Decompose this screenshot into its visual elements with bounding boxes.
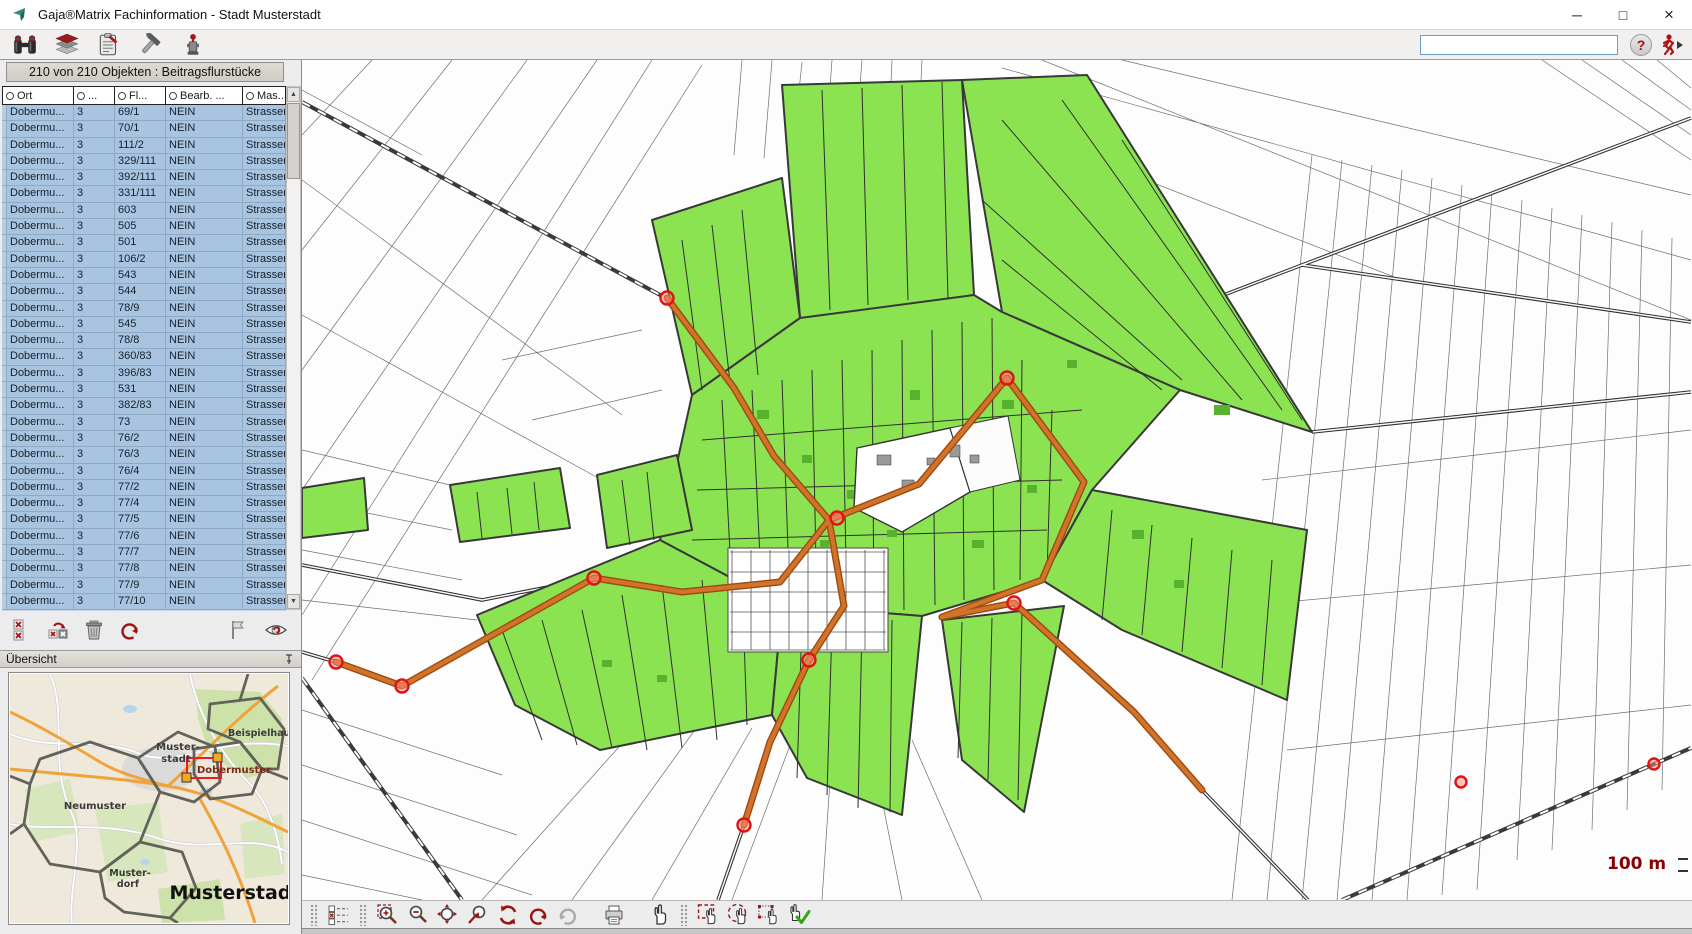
table-row[interactable]: Dobermu...3382/83NEINStrassen... [2, 398, 286, 414]
zoom-extent-icon[interactable] [436, 903, 460, 927]
cell-mas[interactable]: Strassen... [243, 431, 286, 447]
results-table-body[interactable]: Dobermu...369/1NEINStrassen...Dobermu...… [2, 105, 286, 611]
cell-ort[interactable]: Dobermu... [7, 349, 74, 365]
table-scrollbar[interactable]: ▲ ▼ [286, 86, 301, 610]
overview-map-canvas[interactable]: Beispielhausen Muster- stadt Dobermuster… [10, 674, 288, 923]
cell-fl[interactable]: 77/4 [115, 496, 166, 512]
cell-fl[interactable]: 77/5 [115, 512, 166, 528]
cell-nr[interactable]: 3 [74, 317, 115, 333]
refresh-icon[interactable] [496, 903, 520, 927]
label-musterdorf-1: Muster- [109, 868, 151, 879]
cell-mas[interactable]: Strassen... [243, 284, 286, 300]
cell-ort[interactable]: Dobermu... [7, 578, 74, 594]
cell-ort[interactable]: Dobermu... [7, 317, 74, 333]
radio-icon[interactable] [6, 92, 14, 100]
cell-bearb[interactable]: NEIN [166, 382, 243, 398]
cell-fl[interactable]: 603 [115, 203, 166, 219]
cell-bearb[interactable]: NEIN [166, 333, 243, 349]
cell-fl[interactable]: 392/111 [115, 170, 166, 186]
cell-fl[interactable]: 76/3 [115, 447, 166, 463]
table-row[interactable]: Dobermu...3501NEINStrassen... [2, 235, 286, 251]
cell-ort[interactable]: Dobermu... [7, 398, 74, 414]
cell-nr[interactable]: 3 [74, 431, 115, 447]
pin-icon[interactable] [283, 653, 295, 665]
table-row[interactable]: Dobermu...3331/111NEINStrassen... [2, 186, 286, 202]
zoom-previous-icon[interactable] [466, 903, 490, 927]
layers-icon[interactable] [54, 32, 80, 58]
table-row[interactable]: Dobermu...3396/83NEINStrassen... [2, 366, 286, 382]
table-header-row: Ort ... Fl... Bearb. ... Mas... [2, 86, 286, 105]
cell-mas[interactable]: Strassen... [243, 170, 286, 186]
cell-fl[interactable]: 77/2 [115, 480, 166, 496]
table-row[interactable]: Dobermu...377/8NEINStrassen... [2, 561, 286, 577]
cell-fl[interactable]: 396/83 [115, 366, 166, 382]
cell-nr[interactable]: 3 [74, 154, 115, 170]
cell-nr[interactable]: 3 [74, 121, 115, 137]
label-dobermuster: Dobermuster [197, 765, 271, 776]
table-row[interactable]: Dobermu...3603NEINStrassen... [2, 203, 286, 219]
column-header-massnahme[interactable]: Mas... [243, 86, 286, 105]
cell-nr[interactable]: 3 [74, 594, 115, 610]
toolbar-grip[interactable] [310, 904, 319, 926]
visibility-icon[interactable] [264, 618, 288, 642]
label-beispielhausen: Beispielhausen [228, 728, 288, 739]
cell-fl[interactable]: 111/2 [115, 138, 166, 154]
select-polygon-icon[interactable] [757, 903, 781, 927]
cell-mas[interactable]: Strassen... [243, 268, 286, 284]
cell-fl[interactable]: 77/10 [115, 594, 166, 610]
cell-mas[interactable]: Strassen... [243, 235, 286, 251]
cell-nr[interactable]: 3 [74, 138, 115, 154]
scale-label: 100 m [1607, 854, 1666, 874]
scroll-up-button[interactable]: ▲ [287, 87, 300, 102]
main-toolbar: ? [0, 30, 1692, 60]
cell-nr[interactable]: 3 [74, 545, 115, 561]
cell-bearb[interactable]: NEIN [166, 447, 243, 463]
cell-nr[interactable]: 3 [74, 398, 115, 414]
cell-bearb[interactable]: NEIN [166, 398, 243, 414]
cell-bearb[interactable]: NEIN [166, 366, 243, 382]
cell-ort[interactable]: Dobermu... [7, 301, 74, 317]
cell-bearb[interactable]: NEIN [166, 480, 243, 496]
overview-panel-header[interactable]: Übersicht [0, 650, 301, 668]
cell-ort[interactable]: Dobermu... [7, 594, 74, 610]
cell-bearb[interactable]: NEIN [166, 268, 243, 284]
table-row[interactable]: Dobermu...3106/2NEINStrassen... [2, 252, 286, 268]
cell-mas[interactable]: Strassen... [243, 252, 286, 268]
table-row[interactable]: Dobermu...370/1NEINStrassen... [2, 121, 286, 137]
label-musterstadt-1: Muster- [156, 742, 200, 753]
cell-nr[interactable]: 3 [74, 366, 115, 382]
cell-nr[interactable]: 3 [74, 268, 115, 284]
table-row[interactable]: Dobermu...3544NEINStrassen... [2, 284, 286, 300]
titlebar: Gaja®Matrix Fachinformation - Stadt Must… [0, 0, 1692, 30]
cell-fl[interactable]: 73 [115, 415, 166, 431]
cell-mas[interactable]: Strassen... [243, 366, 286, 382]
cell-fl[interactable]: 77/6 [115, 529, 166, 545]
select-circle-icon[interactable] [727, 903, 751, 927]
cell-ort[interactable]: Dobermu... [7, 284, 74, 300]
maximize-button[interactable]: □ [1600, 0, 1646, 30]
cell-bearb[interactable]: NEIN [166, 464, 243, 480]
cell-bearb[interactable]: NEIN [166, 317, 243, 333]
table-row[interactable]: Dobermu...3111/2NEINStrassen... [2, 138, 286, 154]
cell-ort[interactable]: Dobermu... [7, 480, 74, 496]
cell-ort[interactable]: Dobermu... [7, 186, 74, 202]
pan-icon[interactable] [648, 903, 672, 927]
table-row[interactable]: Dobermu...377/5NEINStrassen... [2, 512, 286, 528]
cell-mas[interactable]: Strassen... [243, 154, 286, 170]
table-row[interactable]: Dobermu...369/1NEINStrassen... [2, 105, 286, 121]
report-icon[interactable] [96, 32, 122, 58]
cell-mas[interactable]: Strassen... [243, 186, 286, 202]
cell-bearb[interactable]: NEIN [166, 512, 243, 528]
flag-icon[interactable] [226, 618, 250, 642]
cell-bearb[interactable]: NEIN [166, 219, 243, 235]
cell-bearb[interactable]: NEIN [166, 170, 243, 186]
cell-mas[interactable]: Strassen... [243, 203, 286, 219]
table-row[interactable]: Dobermu...373NEINStrassen... [2, 415, 286, 431]
cell-nr[interactable]: 3 [74, 480, 115, 496]
table-row[interactable]: Dobermu...377/2NEINStrassen... [2, 480, 286, 496]
table-row[interactable]: Dobermu...378/8NEINStrassen... [2, 333, 286, 349]
cell-nr[interactable]: 3 [74, 561, 115, 577]
cell-fl[interactable]: 543 [115, 268, 166, 284]
discard-selection-icon[interactable] [10, 618, 34, 642]
table-row[interactable]: Dobermu...376/2NEINStrassen... [2, 431, 286, 447]
cell-bearb[interactable]: NEIN [166, 594, 243, 610]
cell-mas[interactable]: Strassen... [243, 578, 286, 594]
cell-nr[interactable]: 3 [74, 170, 115, 186]
extent-handle-ne[interactable] [213, 753, 222, 762]
cell-ort[interactable]: Dobermu... [7, 105, 74, 121]
cell-nr[interactable]: 3 [74, 235, 115, 251]
cell-ort[interactable]: Dobermu... [7, 529, 74, 545]
cell-mas[interactable]: Strassen... [243, 398, 286, 414]
legend-icon[interactable] [327, 903, 351, 927]
reload-selection-icon[interactable] [46, 618, 70, 642]
development-grid [728, 548, 888, 652]
cell-bearb[interactable]: NEIN [166, 431, 243, 447]
cell-fl[interactable]: 501 [115, 235, 166, 251]
cell-bearb[interactable]: NEIN [166, 154, 243, 170]
table-row[interactable]: Dobermu...377/4NEINStrassen... [2, 496, 286, 512]
cell-ort[interactable]: Dobermu... [7, 268, 74, 284]
radio-icon[interactable] [77, 92, 85, 100]
delete-icon[interactable] [82, 618, 106, 642]
find-icon[interactable] [12, 32, 38, 58]
cell-fl[interactable]: 76/4 [115, 464, 166, 480]
cell-nr[interactable]: 3 [74, 512, 115, 528]
cell-nr[interactable]: 3 [74, 301, 115, 317]
cell-bearb[interactable]: NEIN [166, 186, 243, 202]
cell-nr[interactable]: 3 [74, 186, 115, 202]
results-panel: 210 von 210 Objekten : Beitragsflurstück… [0, 60, 302, 934]
cell-nr[interactable]: 3 [74, 496, 115, 512]
cell-mas[interactable]: Strassen... [243, 317, 286, 333]
undo-icon[interactable] [118, 618, 142, 642]
table-actions-bar [0, 612, 302, 648]
cell-ort[interactable]: Dobermu... [7, 235, 74, 251]
cell-bearb[interactable]: NEIN [166, 545, 243, 561]
cell-mas[interactable]: Strassen... [243, 382, 286, 398]
accept-selection-icon[interactable] [787, 903, 811, 927]
cell-mas[interactable]: Strassen... [243, 138, 286, 154]
cell-nr[interactable]: 3 [74, 415, 115, 431]
cell-nr[interactable]: 3 [74, 203, 115, 219]
table-row[interactable]: Dobermu...377/6NEINStrassen... [2, 529, 286, 545]
label-musterstadt-2: stadt [161, 754, 191, 765]
cell-ort[interactable]: Dobermu... [7, 464, 74, 480]
cell-bearb[interactable]: NEIN [166, 121, 243, 137]
cell-bearb[interactable]: NEIN [166, 105, 243, 121]
cell-ort[interactable]: Dobermu... [7, 431, 74, 447]
table-row[interactable]: Dobermu...3360/83NEINStrassen... [2, 349, 286, 365]
label-neumuster: Neumuster [64, 801, 126, 812]
cell-mas[interactable]: Strassen... [243, 333, 286, 349]
zoom-out-icon[interactable] [406, 903, 430, 927]
cell-bearb[interactable]: NEIN [166, 496, 243, 512]
cell-mas[interactable]: Strassen... [243, 415, 286, 431]
cell-fl[interactable]: 76/2 [115, 431, 166, 447]
cell-mas[interactable]: Strassen... [243, 594, 286, 610]
column-header-flurstueck[interactable]: Fl... [115, 86, 166, 105]
cell-bearb[interactable]: NEIN [166, 235, 243, 251]
cell-mas[interactable]: Strassen... [243, 121, 286, 137]
cell-ort[interactable]: Dobermu... [7, 203, 74, 219]
cell-mas[interactable]: Strassen... [243, 561, 286, 577]
cell-nr[interactable]: 3 [74, 447, 115, 463]
cell-fl[interactable]: 360/83 [115, 349, 166, 365]
cell-fl[interactable]: 544 [115, 284, 166, 300]
radio-icon[interactable] [118, 92, 126, 100]
scroll-thumb[interactable] [287, 103, 300, 179]
cell-ort[interactable]: Dobermu... [7, 154, 74, 170]
cell-ort[interactable]: Dobermu... [7, 333, 74, 349]
hydrant-icon[interactable] [180, 32, 206, 58]
radio-icon[interactable] [246, 92, 254, 100]
cell-mas[interactable]: Strassen... [243, 545, 286, 561]
cell-ort[interactable]: Dobermu... [7, 121, 74, 137]
cell-fl[interactable]: 77/8 [115, 561, 166, 577]
extent-handle-sw[interactable] [182, 773, 191, 782]
table-row[interactable]: Dobermu...3545NEINStrassen... [2, 317, 286, 333]
table-row[interactable]: Dobermu...376/3NEINStrassen... [2, 447, 286, 463]
cell-ort[interactable]: Dobermu... [7, 561, 74, 577]
map-toolbar [302, 900, 1692, 928]
cell-fl[interactable]: 77/7 [115, 545, 166, 561]
cell-ort[interactable]: Dobermu... [7, 415, 74, 431]
cell-bearb[interactable]: NEIN [166, 578, 243, 594]
toolbar-grip[interactable] [680, 904, 689, 926]
cell-mas[interactable]: Strassen... [243, 447, 286, 463]
cell-bearb[interactable]: NEIN [166, 138, 243, 154]
results-count-header: 210 von 210 Objekten : Beitragsflurstück… [6, 62, 284, 82]
cell-bearb[interactable]: NEIN [166, 203, 243, 219]
table-row[interactable]: Dobermu...3505NEINStrassen... [2, 219, 286, 235]
cell-fl[interactable]: 545 [115, 317, 166, 333]
cell-mas[interactable]: Strassen... [243, 496, 286, 512]
cell-bearb[interactable]: NEIN [166, 349, 243, 365]
cell-fl[interactable]: 78/9 [115, 301, 166, 317]
cell-fl[interactable]: 329/111 [115, 154, 166, 170]
app-window: { "window": { "title": "Gaja®Matrix Fach… [0, 0, 1692, 934]
cell-mas[interactable]: Strassen... [243, 480, 286, 496]
cell-mas[interactable]: Strassen... [243, 301, 286, 317]
cell-nr[interactable]: 3 [74, 529, 115, 545]
cell-fl[interactable]: 505 [115, 219, 166, 235]
cell-ort[interactable]: Dobermu... [7, 170, 74, 186]
cell-mas[interactable]: Strassen... [243, 512, 286, 528]
cell-mas[interactable]: Strassen... [243, 219, 286, 235]
scroll-down-button[interactable]: ▼ [287, 594, 300, 609]
cell-nr[interactable]: 3 [74, 105, 115, 121]
cell-fl[interactable]: 531 [115, 382, 166, 398]
cell-ort[interactable]: Dobermu... [7, 447, 74, 463]
map-undo-icon[interactable] [526, 903, 550, 927]
window-title: Gaja®Matrix Fachinformation - Stadt Must… [38, 7, 321, 22]
toolbar-grip[interactable] [359, 904, 368, 926]
overview-title: Übersicht [6, 652, 57, 666]
cell-nr[interactable]: 3 [74, 349, 115, 365]
table-row[interactable]: Dobermu...3392/111NEINStrassen... [2, 170, 286, 186]
map-canvas[interactable] [302, 60, 1692, 900]
overview-map[interactable]: Beispielhausen Muster- stadt Dobermuster… [8, 672, 290, 925]
scale-ticks [1678, 858, 1688, 872]
close-button[interactable]: × [1646, 0, 1692, 30]
table-row[interactable]: Dobermu...3543NEINStrassen... [2, 268, 286, 284]
cell-mas[interactable]: Strassen... [243, 105, 286, 121]
cell-mas[interactable]: Strassen... [243, 529, 286, 545]
radio-icon[interactable] [169, 92, 177, 100]
cell-fl[interactable]: 331/111 [115, 186, 166, 202]
table-row[interactable]: Dobermu...377/10NEINStrassen... [2, 594, 286, 610]
cell-bearb[interactable]: NEIN [166, 415, 243, 431]
cell-ort[interactable]: Dobermu... [7, 138, 74, 154]
cell-ort[interactable]: Dobermu... [7, 545, 74, 561]
table-row[interactable]: Dobermu...378/9NEINStrassen... [2, 301, 286, 317]
cell-nr[interactable]: 3 [74, 464, 115, 480]
column-header-nr[interactable]: ... [74, 86, 115, 105]
table-row[interactable]: Dobermu...3329/111NEINStrassen... [2, 154, 286, 170]
cell-nr[interactable]: 3 [74, 252, 115, 268]
search-input[interactable] [1420, 35, 1618, 55]
cell-fl[interactable]: 70/1 [115, 121, 166, 137]
column-header-bearbeitet[interactable]: Bearb. ... [166, 86, 243, 105]
table-row[interactable]: Dobermu...377/7NEINStrassen... [2, 545, 286, 561]
help-button[interactable]: ? [1630, 34, 1652, 56]
table-row[interactable]: Dobermu...376/4NEINStrassen... [2, 464, 286, 480]
cell-fl[interactable]: 69/1 [115, 105, 166, 121]
cell-fl[interactable]: 78/8 [115, 333, 166, 349]
cell-fl[interactable]: 382/83 [115, 398, 166, 414]
exit-icon[interactable] [1658, 33, 1686, 57]
cell-nr[interactable]: 3 [74, 284, 115, 300]
window-bottom-edge [302, 928, 1692, 934]
print-icon[interactable] [602, 903, 626, 927]
column-header-ort[interactable]: Ort [2, 86, 74, 105]
cell-nr[interactable]: 3 [74, 578, 115, 594]
tools-icon[interactable] [138, 32, 164, 58]
cell-nr[interactable]: 3 [74, 382, 115, 398]
cell-fl[interactable]: 77/9 [115, 578, 166, 594]
cell-ort[interactable]: Dobermu... [7, 382, 74, 398]
map-redo-icon[interactable] [556, 903, 580, 927]
cell-fl[interactable]: 106/2 [115, 252, 166, 268]
cell-bearb[interactable]: NEIN [166, 561, 243, 577]
cell-ort[interactable]: Dobermu... [7, 496, 74, 512]
cell-bearb[interactable]: NEIN [166, 284, 243, 300]
cell-bearb[interactable]: NEIN [166, 301, 243, 317]
cell-nr[interactable]: 3 [74, 333, 115, 349]
cell-ort[interactable]: Dobermu... [7, 512, 74, 528]
label-musterdorf-2: dorf [117, 879, 140, 890]
cell-ort[interactable]: Dobermu... [7, 219, 74, 235]
cell-nr[interactable]: 3 [74, 219, 115, 235]
select-rect-icon[interactable] [697, 903, 721, 927]
cell-mas[interactable]: Strassen... [243, 464, 286, 480]
map-area: 100 m [302, 60, 1692, 934]
cell-mas[interactable]: Strassen... [243, 349, 286, 365]
table-row[interactable]: Dobermu...377/9NEINStrassen... [2, 578, 286, 594]
app-icon [12, 7, 28, 23]
cell-ort[interactable]: Dobermu... [7, 366, 74, 382]
cell-bearb[interactable]: NEIN [166, 252, 243, 268]
minimize-button[interactable]: ─ [1554, 0, 1600, 30]
table-row[interactable]: Dobermu...3531NEINStrassen... [2, 382, 286, 398]
cell-ort[interactable]: Dobermu... [7, 252, 74, 268]
label-city: Musterstadt [170, 882, 288, 904]
zoom-in-icon[interactable] [376, 903, 400, 927]
cell-bearb[interactable]: NEIN [166, 529, 243, 545]
